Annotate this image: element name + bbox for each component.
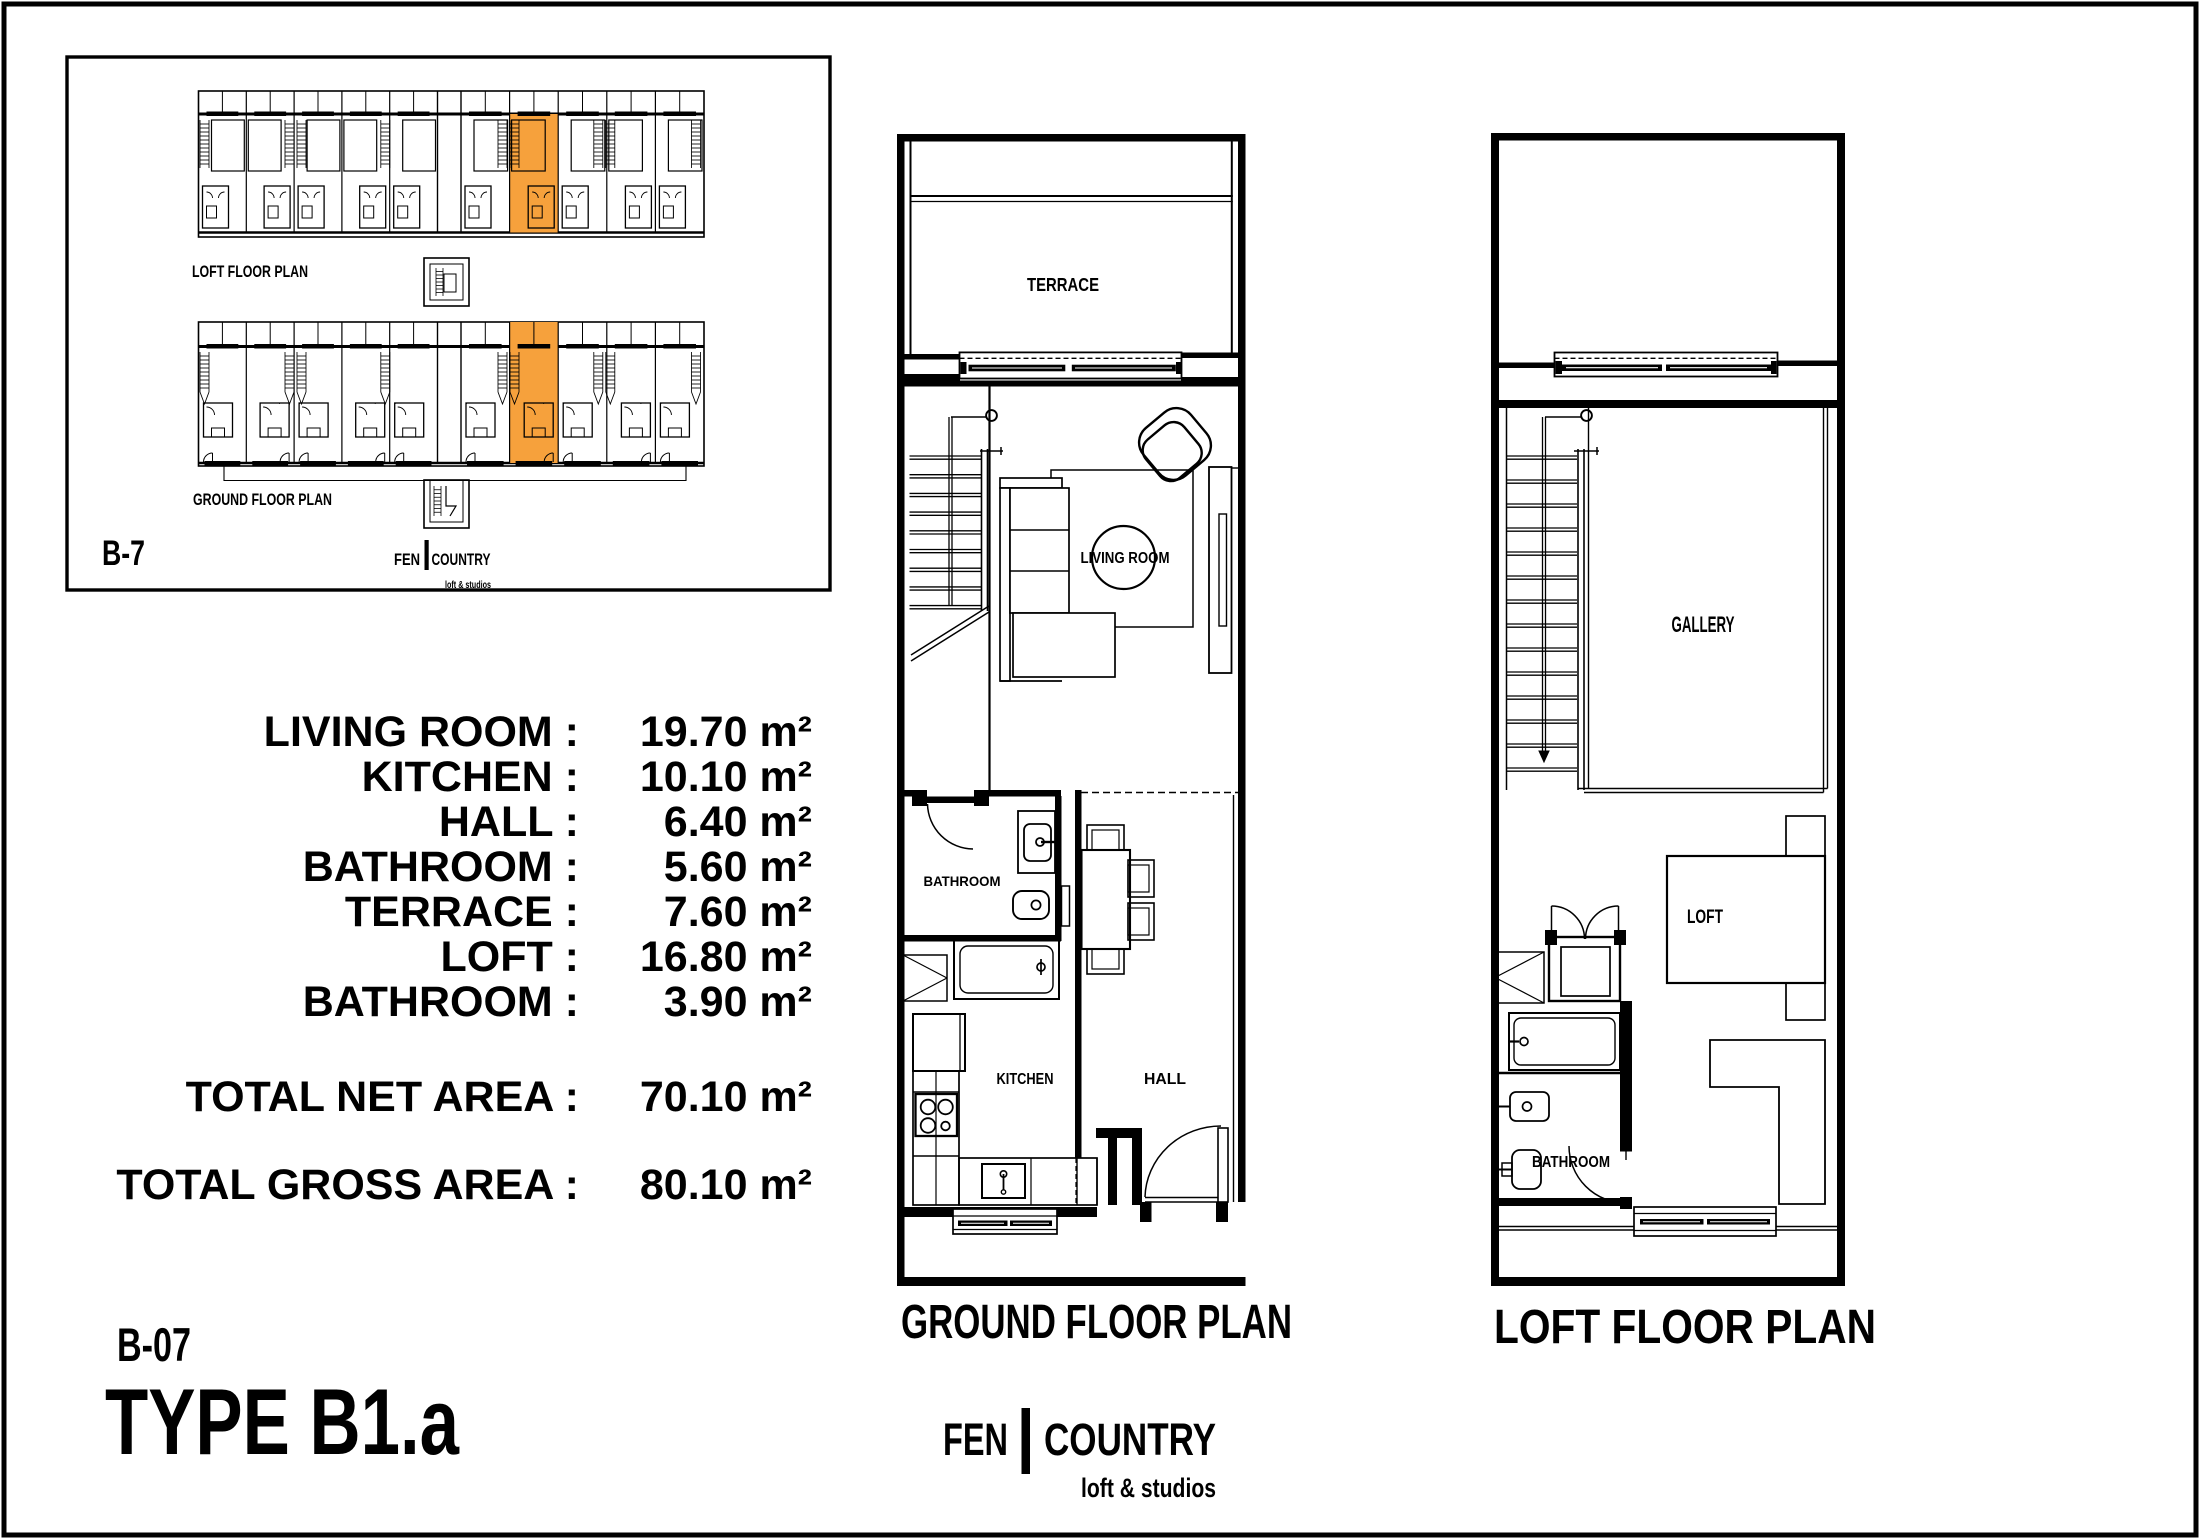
svg-text:TERRACE: TERRACE [1027,274,1099,295]
svg-text:10.10 m²: 10.10 m² [640,753,812,801]
svg-text:70.10 m²: 70.10 m² [640,1073,812,1121]
svg-text:19.70 m²: 19.70 m² [640,708,812,756]
svg-text:B-7: B-7 [102,534,145,573]
svg-text:LOFT :: LOFT : [440,933,579,981]
svg-text:GROUND FLOOR PLAN: GROUND FLOOR PLAN [193,490,332,509]
svg-text:BATHROOM: BATHROOM [924,873,1001,889]
svg-text:TOTAL NET AREA :: TOTAL NET AREA : [186,1073,579,1121]
svg-text:16.80 m²: 16.80 m² [640,933,812,981]
svg-text:TERRACE :: TERRACE : [345,888,579,936]
svg-text:LIVING ROOM :: LIVING ROOM : [264,708,579,756]
svg-text:COUNTRY: COUNTRY [432,551,491,569]
svg-text:LIVING ROOM: LIVING ROOM [1081,550,1170,567]
svg-text:TOTAL GROSS AREA :: TOTAL GROSS AREA : [116,1161,579,1209]
svg-text:LOFT: LOFT [1687,907,1723,928]
svg-text:3.90 m²: 3.90 m² [664,978,812,1026]
svg-text:7.60 m²: 7.60 m² [664,888,812,936]
svg-text:LOFT FLOOR PLAN: LOFT FLOOR PLAN [192,262,308,281]
svg-text:80.10 m²: 80.10 m² [640,1161,812,1209]
svg-text:KITCHEN :: KITCHEN : [362,753,579,801]
svg-text:loft & studios: loft & studios [1081,1473,1216,1503]
svg-text:B-07: B-07 [117,1318,191,1371]
svg-text:BATHROOM :: BATHROOM : [303,978,579,1026]
svg-text:COUNTRY: COUNTRY [1044,1414,1216,1465]
svg-text:TYPE B1.a: TYPE B1.a [105,1369,460,1474]
svg-text:loft & studios: loft & studios [445,579,491,591]
svg-text:GROUND FLOOR PLAN: GROUND FLOOR PLAN [901,1296,1292,1349]
svg-text:KITCHEN: KITCHEN [997,1071,1054,1088]
svg-text:GALLERY: GALLERY [1672,612,1735,637]
svg-text:HALL: HALL [1144,1071,1186,1088]
svg-text:6.40 m²: 6.40 m² [664,798,812,846]
svg-text:LOFT FLOOR PLAN: LOFT FLOOR PLAN [1494,1301,1876,1354]
svg-text:FEN: FEN [394,551,420,569]
svg-text:FEN: FEN [943,1414,1008,1465]
svg-text:5.60 m²: 5.60 m² [664,843,812,891]
svg-text:BATHROOM :: BATHROOM : [303,843,579,891]
svg-text:HALL :: HALL : [439,798,579,846]
